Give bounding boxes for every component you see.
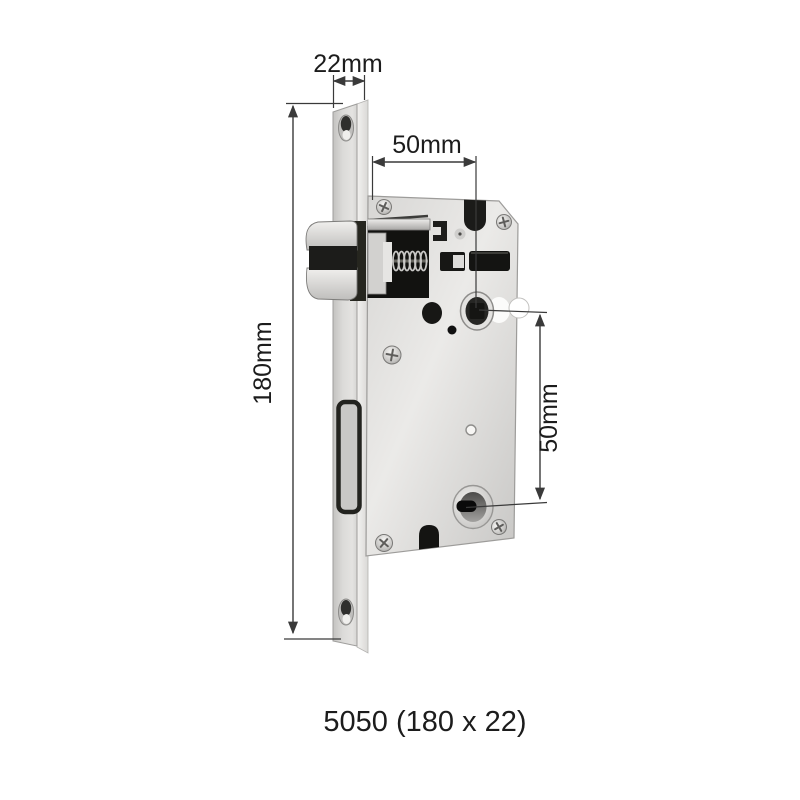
- mechanism-dot: [448, 326, 457, 335]
- product-dimension-diagram: 22mm 180mm 50mm 50mm 5050 (180 x 22): [0, 0, 800, 800]
- faceplate-hole-top: [339, 115, 354, 141]
- bottom-arch-cutout: [419, 525, 439, 551]
- keyhole: [457, 501, 477, 513]
- faceplate: [333, 104, 360, 646]
- latch-bolt: [306, 221, 366, 301]
- slot-large: [469, 251, 510, 271]
- dim-label-faceplate-width: 22mm: [313, 50, 382, 78]
- case-pin-hole: [466, 425, 476, 435]
- slot-small-clip: [453, 255, 464, 268]
- latch-pusher-plate: [383, 242, 392, 282]
- faceplate-hole-bottom: [339, 599, 354, 625]
- pin-hole-center: [458, 232, 461, 235]
- spindle-square-hole: [470, 303, 485, 319]
- stop-follower-tab: [464, 199, 486, 231]
- mortise-lock-diagram: 22mm 180mm 50mm 50mm 5050 (180 x 22): [0, 0, 800, 800]
- faceplate-side-edge: [357, 100, 368, 653]
- latch-bolt-band: [309, 246, 357, 270]
- product-caption: 5050 (180 x 22): [323, 706, 526, 738]
- dim-label-faceplate-height: 180mm: [249, 321, 277, 404]
- latch-frame-top-bar: [358, 219, 430, 230]
- dim-label-backset-top: 50mm: [392, 131, 461, 159]
- dimension-faceplate-height: 180mm: [249, 104, 343, 640]
- latch-spring-coil: [393, 252, 427, 271]
- faceplate-front: [333, 104, 357, 646]
- latch-bolt-top: [306, 221, 357, 250]
- dimension-faceplate-width: 22mm: [313, 50, 382, 108]
- deadbolt-aperture: [339, 402, 360, 512]
- dim-label-center-spacing: 50mm: [535, 383, 563, 452]
- case-edge-notch: [509, 298, 529, 318]
- mechanism-hole-large: [422, 302, 442, 324]
- lock-case: [358, 196, 529, 556]
- latch-bolt-bottom: [306, 268, 357, 300]
